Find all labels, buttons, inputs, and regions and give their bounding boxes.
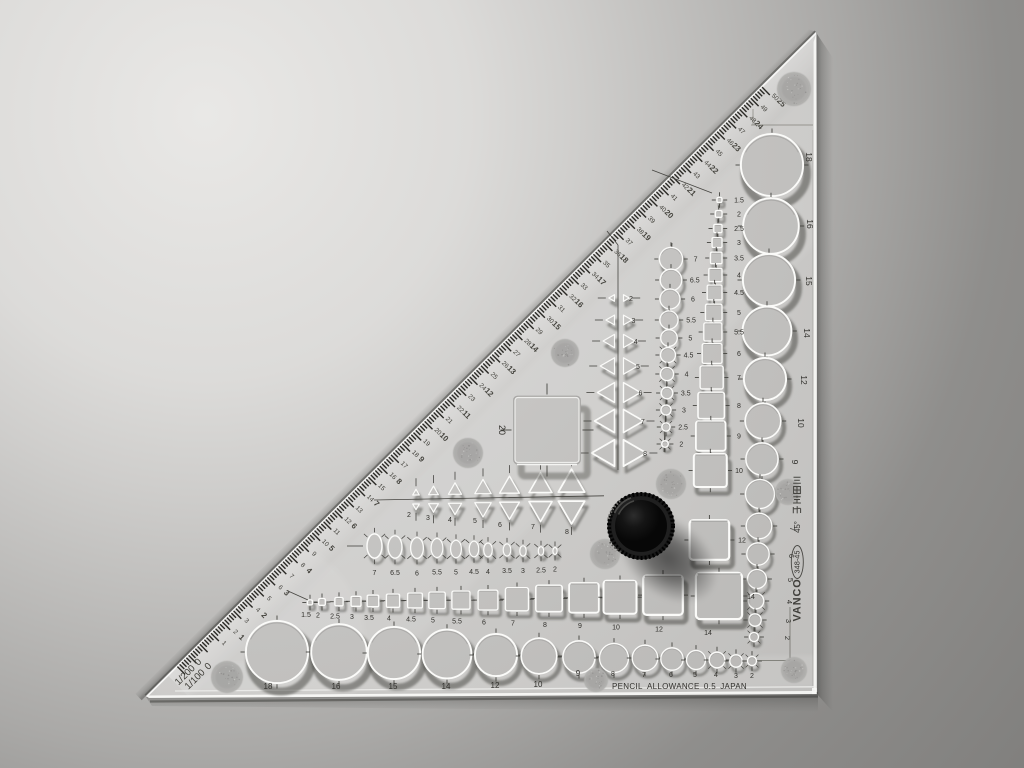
svg-text:8: 8 [611,671,615,678]
svg-text:348-45: 348-45 [793,550,802,573]
svg-text:4.5: 4.5 [406,616,416,623]
svg-text:18: 18 [804,152,814,162]
svg-text:3.5: 3.5 [364,615,374,622]
svg-text:4: 4 [685,372,689,379]
svg-text:2: 2 [553,567,557,574]
svg-text:5.5: 5.5 [686,318,696,325]
svg-text:2.5: 2.5 [330,613,340,620]
svg-text:6: 6 [669,672,673,679]
svg-text:2: 2 [629,296,633,303]
svg-text:7: 7 [511,621,515,628]
svg-text:2: 2 [737,212,741,219]
svg-text:3.5: 3.5 [734,256,744,263]
svg-text:2: 2 [679,442,683,449]
svg-text:7: 7 [373,570,377,577]
svg-text:6.5: 6.5 [690,278,700,285]
svg-text:8: 8 [565,529,569,536]
svg-text:5.5: 5.5 [734,330,744,337]
svg-text:14: 14 [704,630,712,637]
svg-text:5: 5 [636,364,640,371]
svg-text:1.5: 1.5 [734,198,744,205]
svg-text:12: 12 [799,375,809,385]
svg-text:1.5: 1.5 [301,612,311,619]
svg-text:14: 14 [442,682,451,691]
svg-text:6.5: 6.5 [390,570,400,577]
svg-text:2.5: 2.5 [536,567,546,574]
svg-text:4.5: 4.5 [734,290,744,297]
svg-text:5: 5 [473,518,477,525]
svg-text:9: 9 [737,434,741,441]
svg-text:5: 5 [688,336,692,343]
svg-text:4.5: 4.5 [469,569,479,576]
svg-text:6: 6 [737,351,741,358]
svg-text:3.5: 3.5 [502,568,512,575]
svg-text:4: 4 [387,616,391,623]
svg-text:10: 10 [796,418,806,428]
svg-text:3.5: 3.5 [681,391,691,398]
svg-text:5: 5 [431,617,435,624]
svg-text:10: 10 [612,625,620,632]
svg-text:8: 8 [543,622,547,629]
svg-text:4: 4 [486,569,490,576]
svg-text:6: 6 [415,570,419,577]
svg-text:6: 6 [482,619,486,626]
svg-text:8: 8 [643,451,647,458]
svg-text:2.5: 2.5 [734,226,744,233]
svg-text:7: 7 [694,257,698,264]
svg-text:2: 2 [783,636,792,640]
svg-text:15: 15 [804,276,814,286]
svg-text:4.5: 4.5 [684,353,694,360]
svg-text:5: 5 [737,310,741,317]
svg-text:5: 5 [693,672,697,679]
svg-text:6: 6 [691,297,695,304]
svg-text:7: 7 [531,524,535,531]
svg-text:12: 12 [491,681,500,690]
svg-text:6: 6 [638,390,642,397]
svg-text:2: 2 [750,673,754,680]
svg-text:8: 8 [737,403,741,410]
svg-text:5: 5 [454,570,458,577]
svg-text:3: 3 [631,318,635,325]
svg-text:4: 4 [448,517,452,524]
svg-text:3: 3 [350,614,354,621]
svg-text:PENCIL ALLOWANCE 0.5 JAPAN: PENCIL ALLOWANCE 0.5 JAPAN [612,682,747,691]
svg-text:15: 15 [389,682,398,691]
svg-text:9: 9 [578,623,582,630]
svg-text:10: 10 [534,680,543,689]
svg-text:2: 2 [316,613,320,620]
svg-text:2.5: 2.5 [678,425,688,432]
svg-text:6: 6 [498,522,502,529]
svg-text:7: 7 [737,375,741,382]
svg-text:12: 12 [655,626,663,633]
svg-text:10: 10 [735,468,743,475]
svg-text:9: 9 [790,460,800,465]
svg-text:3: 3 [426,515,430,522]
svg-text:5.5: 5.5 [432,570,442,577]
svg-text:14: 14 [802,328,812,338]
svg-text:4: 4 [714,672,718,679]
svg-text:16: 16 [332,682,341,691]
svg-text:3: 3 [734,673,738,680]
svg-text:16: 16 [805,219,815,229]
svg-text:3: 3 [521,568,525,575]
svg-text:7: 7 [641,419,645,426]
svg-text:14: 14 [747,594,755,601]
svg-text:9: 9 [576,669,581,678]
svg-text:12: 12 [738,538,746,545]
svg-text:7: 7 [642,672,646,679]
svg-text:45°: 45° [793,521,802,533]
svg-text:4: 4 [634,339,638,346]
svg-text:5.5: 5.5 [452,618,462,625]
svg-text:2: 2 [407,512,411,519]
svg-text:3: 3 [682,408,686,415]
svg-text:3: 3 [737,240,741,247]
svg-text:18: 18 [264,682,273,691]
svg-text:4: 4 [737,273,741,280]
svg-text:20: 20 [497,425,507,435]
svg-text:VANCO: VANCO [792,578,804,621]
